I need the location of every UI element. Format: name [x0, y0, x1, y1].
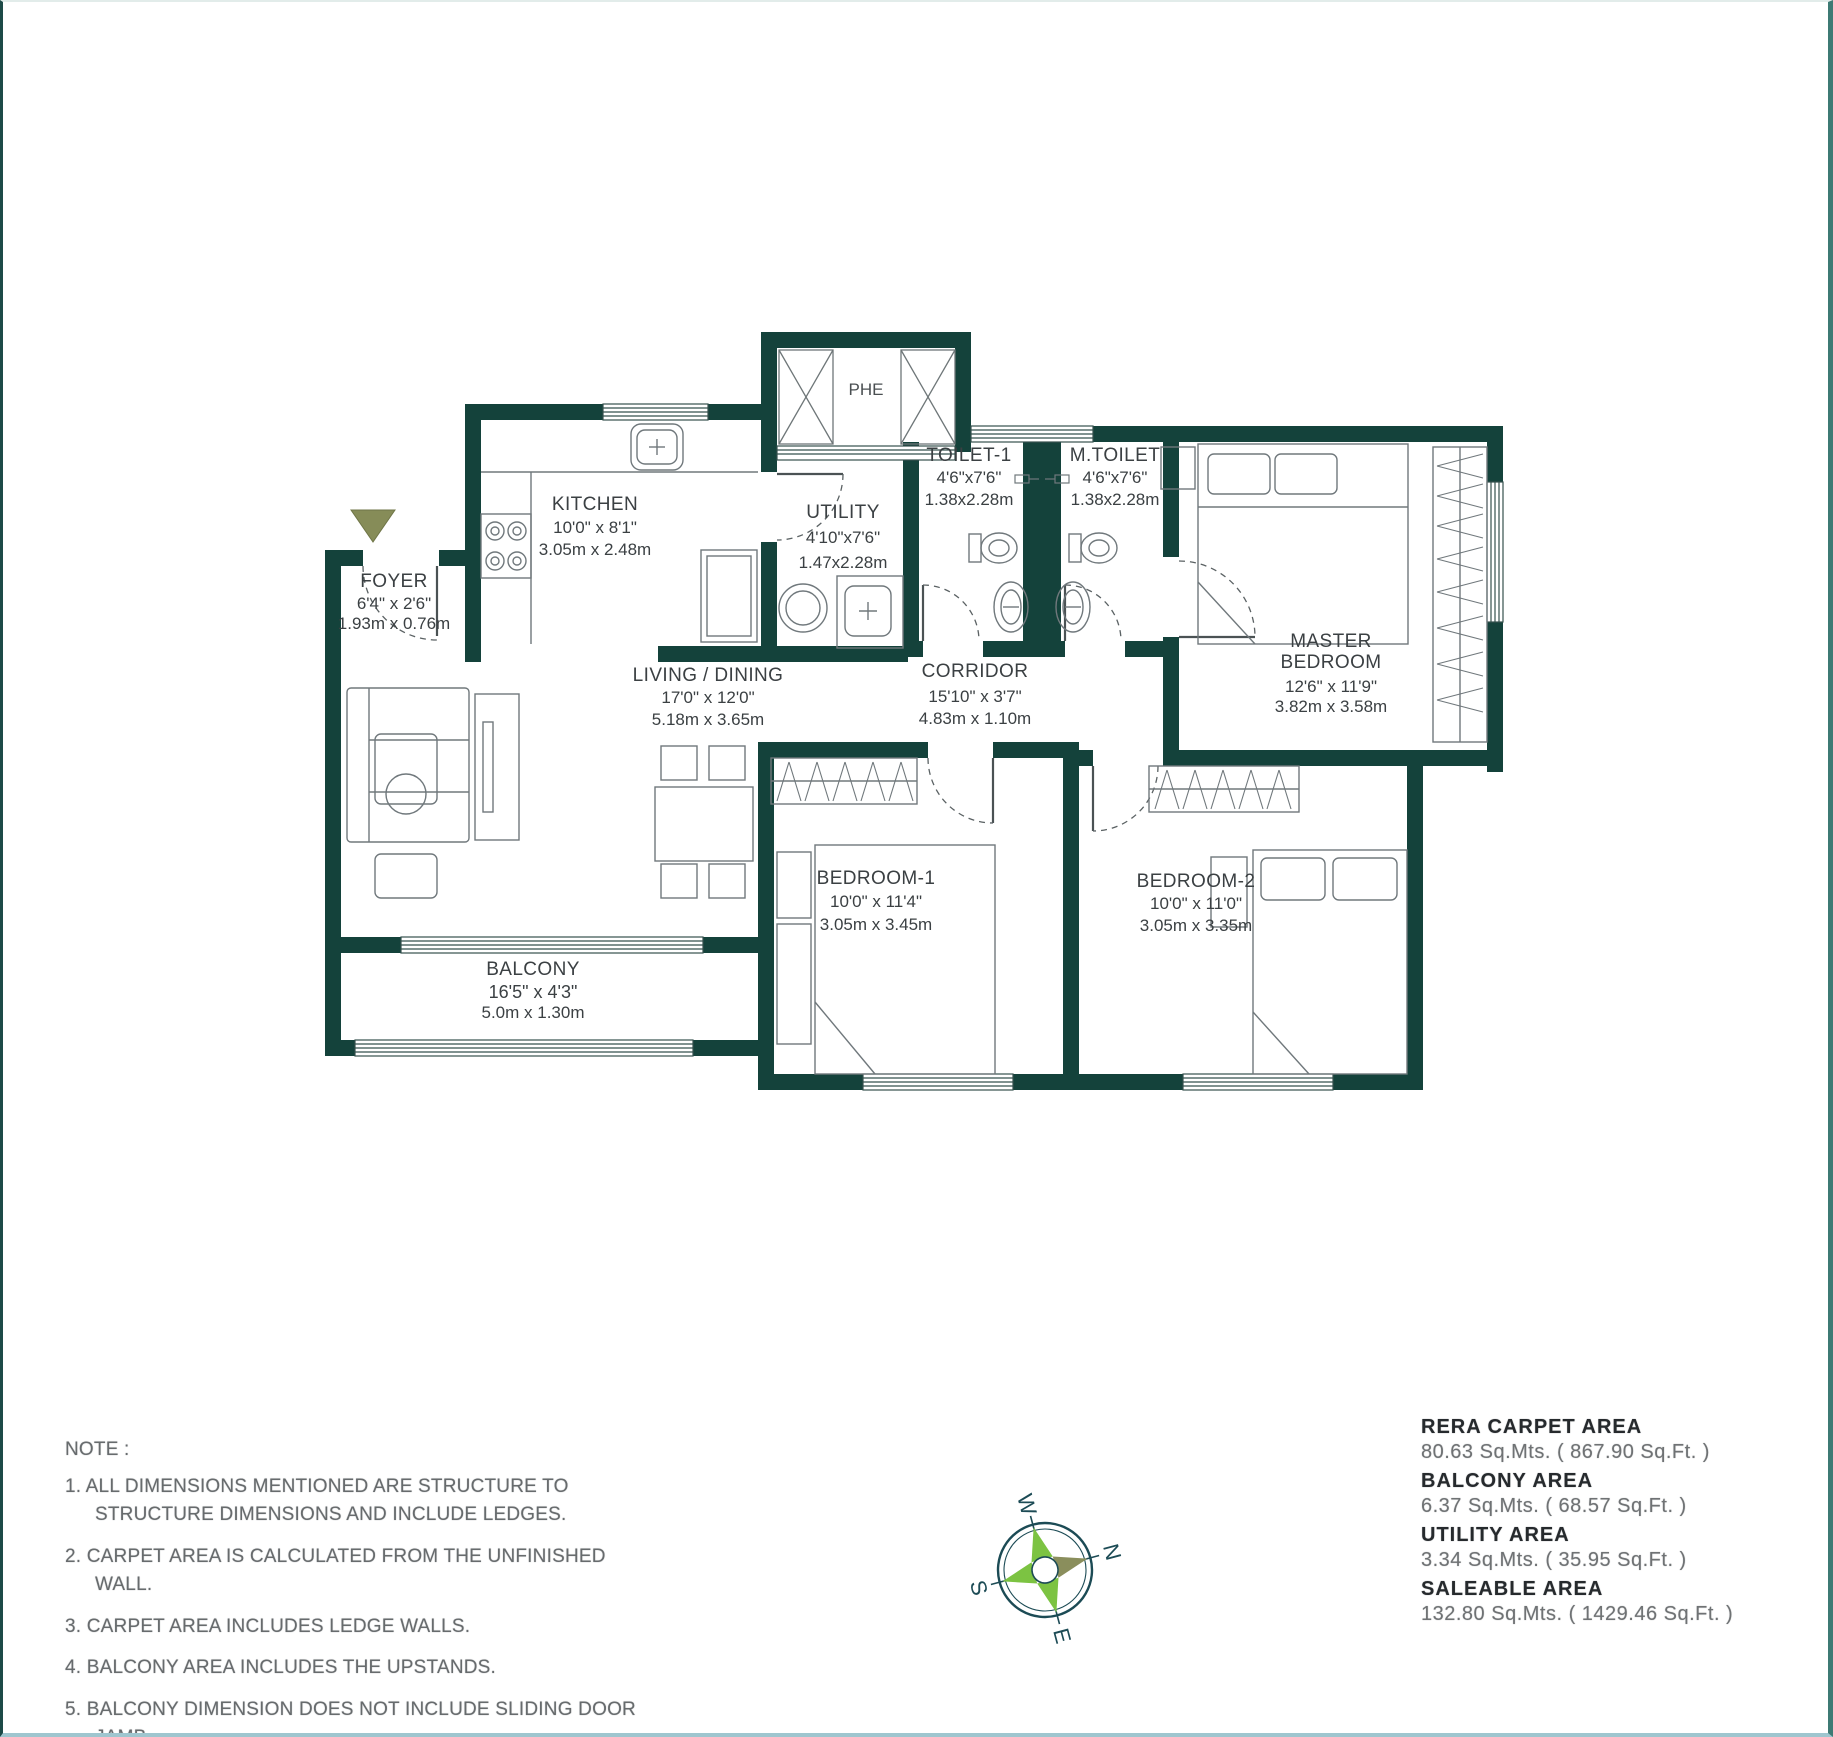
room-dim-ft: 10'0" x 11'4" — [830, 892, 922, 911]
compass-n-label: N — [1098, 1541, 1126, 1563]
room-label-master-bedroom: MASTER — [1290, 631, 1372, 652]
room-dim-m: 3.05m x 3.35m — [1140, 916, 1252, 935]
dining-set — [655, 746, 753, 898]
room-dim-m: 5.0m x 1.30m — [482, 1003, 585, 1022]
toilet1-basin-icon — [994, 582, 1028, 632]
room-dim-m: 1.38x2.28m — [1071, 490, 1160, 509]
utility-sink-icon — [837, 576, 903, 648]
notes-title: NOTE : — [65, 1436, 665, 1465]
ottoman — [375, 854, 437, 898]
room-dim-ft: 10'0" x 8'1" — [553, 518, 637, 537]
entry-arrow-icon — [351, 510, 395, 542]
room-dim-m: 3.05m x 3.45m — [820, 915, 932, 934]
kitchen-sink-icon — [631, 424, 683, 470]
room-dim-ft: 4'10"x7'6" — [806, 528, 880, 547]
floor-plan-page: PHE FOYER 6'4" x 2'6" 1.93m x 0.76m KITC… — [0, 0, 1833, 1737]
area-value: 3.34 Sq.Mts. ( 35.95 Sq.Ft. ) — [1421, 1549, 1821, 1572]
room-label-toilet1: TOILET-1 — [926, 445, 1011, 466]
room-label-corridor: CORRIDOR — [922, 661, 1029, 682]
washing-machine-icon — [779, 584, 827, 632]
area-value: 80.63 Sq.Mts. ( 867.90 Sq.Ft. ) — [1421, 1441, 1821, 1464]
room-label-mtoilet: M.TOILET — [1070, 445, 1160, 466]
note-item: 3. CARPET AREA INCLUDES LEDGE WALLS. — [65, 1613, 665, 1642]
room-label-balcony: BALCONY — [486, 959, 580, 980]
toilet1-wc-icon — [969, 533, 1017, 563]
note-item: 1. ALL DIMENSIONS MENTIONED ARE STRUCTUR… — [65, 1473, 665, 1530]
room-label-master-bedroom: BEDROOM — [1281, 652, 1382, 673]
compass-north-petal — [1053, 1548, 1091, 1578]
area-label: RERA CARPET AREA — [1421, 1416, 1821, 1439]
note-item: 2. CARPET AREA IS CALCULATED FROM THE UN… — [65, 1543, 665, 1600]
dresser — [777, 924, 811, 1044]
area-label: BALCONY AREA — [1421, 1470, 1821, 1493]
area-summary: RERA CARPET AREA 80.63 Sq.Mts. ( 867.90 … — [1421, 1410, 1821, 1632]
compass-w-label: W — [1012, 1491, 1042, 1518]
mtoilet-wc-icon — [1069, 533, 1117, 563]
mtoilet-basin-icon — [1056, 582, 1090, 632]
coffee-table — [375, 734, 437, 814]
room-dim-ft: 17'0" x 12'0" — [661, 688, 754, 707]
room-dim-m: 4.83m x 1.10m — [919, 709, 1031, 728]
compass-rose-icon: N E S W — [946, 1473, 1143, 1664]
room-dim-ft: 15'10" x 3'7" — [928, 687, 1021, 706]
note-item: 4. BALCONY AREA INCLUDES THE UPSTANDS. — [65, 1654, 665, 1683]
room-dim-m: 3.82m x 3.58m — [1275, 697, 1387, 716]
compass-south-petal — [1000, 1562, 1038, 1592]
toilet-window — [971, 426, 1093, 442]
room-dim-ft: 4'6"x7'6" — [937, 468, 1002, 487]
compass-west-petal — [1023, 1525, 1053, 1563]
bedroom2-window — [1183, 1074, 1333, 1090]
area-label: SALEABLE AREA — [1421, 1578, 1821, 1601]
bedroom1-window — [863, 1074, 1013, 1090]
dresser — [777, 852, 811, 918]
room-label-bedroom1: BEDROOM-1 — [817, 868, 936, 889]
balcony-railing — [355, 1040, 693, 1056]
compass-e-label: E — [1048, 1625, 1076, 1646]
stove-icon — [481, 514, 531, 578]
kitchen-window — [603, 404, 708, 420]
room-dim-m: 1.47x2.28m — [799, 553, 888, 572]
bedroom1-wardrobe — [771, 758, 917, 804]
room-dim-m: 5.18m x 3.65m — [652, 710, 764, 729]
room-dim-m: 3.05m x 2.48m — [539, 540, 651, 559]
area-value: 132.80 Sq.Mts. ( 1429.46 Sq.Ft. ) — [1421, 1603, 1821, 1626]
room-label-bedroom2: BEDROOM-2 — [1137, 871, 1256, 892]
room-dim-ft: 16'5" x 4'3" — [489, 982, 578, 1002]
room-dim-ft: 10'0" x 11'0" — [1150, 894, 1242, 913]
compass-east-petal — [1037, 1578, 1067, 1616]
area-label: UTILITY AREA — [1421, 1524, 1821, 1547]
balcony-slider-window — [401, 937, 703, 953]
sofa — [347, 688, 469, 842]
tv-unit — [475, 694, 519, 840]
master-bed — [1161, 444, 1408, 644]
room-dim-ft: 12'6" x 11'9" — [1285, 677, 1377, 696]
bedroom2-wardrobe — [1149, 766, 1299, 812]
room-label-foyer: FOYER — [360, 571, 427, 592]
master-wardrobe — [1433, 447, 1487, 742]
area-value: 6.37 Sq.Mts. ( 68.57 Sq.Ft. ) — [1421, 1495, 1821, 1518]
room-dim-ft: 6'4" x 2'6" — [357, 594, 431, 613]
notes-block: NOTE : 1. ALL DIMENSIONS MENTIONED ARE S… — [65, 1436, 665, 1737]
room-label-utility: UTILITY — [806, 502, 880, 523]
room-dim-m: 1.38x2.28m — [925, 490, 1014, 509]
room-label-kitchen: KITCHEN — [552, 494, 638, 515]
compass-s-label: S — [965, 1577, 993, 1598]
master-side-window — [1487, 482, 1503, 622]
shaft-label: PHE — [849, 380, 884, 399]
room-label-living-dining: LIVING / DINING — [633, 665, 784, 686]
note-item: 5. BALCONY DIMENSION DOES NOT INCLUDE SL… — [65, 1696, 665, 1737]
room-labels: PHE FOYER 6'4" x 2'6" 1.93m x 0.76m KITC… — [338, 380, 1387, 1022]
fridge-icon — [701, 550, 757, 642]
room-dim-m: 1.93m x 0.76m — [338, 614, 450, 633]
room-dim-ft: 4'6"x7'6" — [1083, 468, 1148, 487]
